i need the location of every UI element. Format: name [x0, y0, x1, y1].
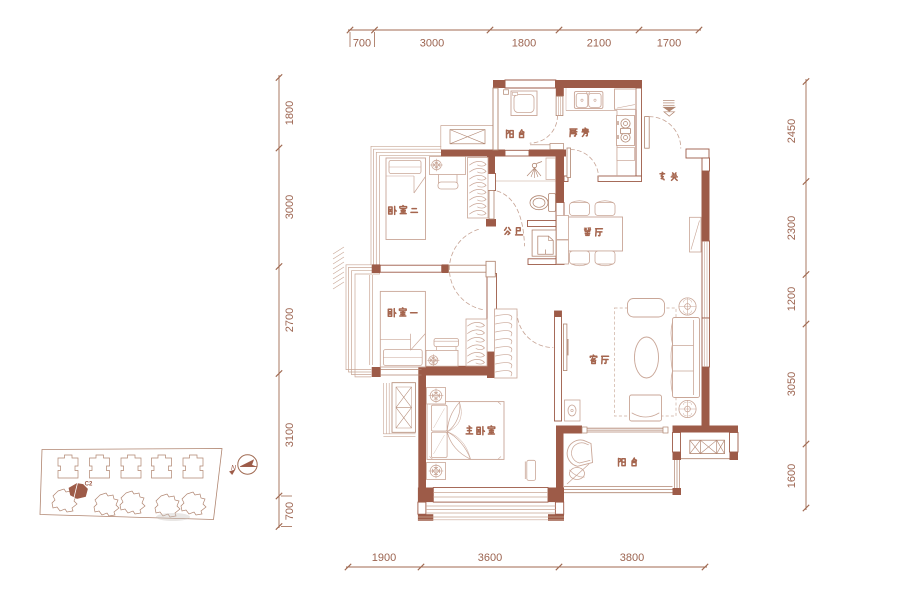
svg-text:3100: 3100: [284, 423, 296, 447]
svg-text:1900: 1900: [372, 552, 396, 564]
svg-text:1800: 1800: [284, 101, 296, 125]
svg-text:2700: 2700: [284, 308, 296, 332]
svg-text:C2: C2: [85, 482, 93, 488]
svg-text:2100: 2100: [587, 38, 611, 50]
svg-text:2450: 2450: [786, 119, 798, 143]
svg-text:700: 700: [353, 38, 371, 50]
svg-text:3000: 3000: [284, 195, 296, 219]
svg-text:3600: 3600: [478, 552, 502, 564]
svg-text:3800: 3800: [620, 552, 644, 564]
svg-text:2300: 2300: [786, 216, 798, 240]
svg-text:1700: 1700: [657, 38, 681, 50]
svg-text:1200: 1200: [786, 287, 798, 311]
svg-text:1600: 1600: [786, 464, 798, 488]
svg-text:3050: 3050: [786, 372, 798, 396]
svg-text:700: 700: [284, 502, 296, 520]
svg-text:3000: 3000: [420, 38, 444, 50]
svg-text:1800: 1800: [512, 38, 536, 50]
